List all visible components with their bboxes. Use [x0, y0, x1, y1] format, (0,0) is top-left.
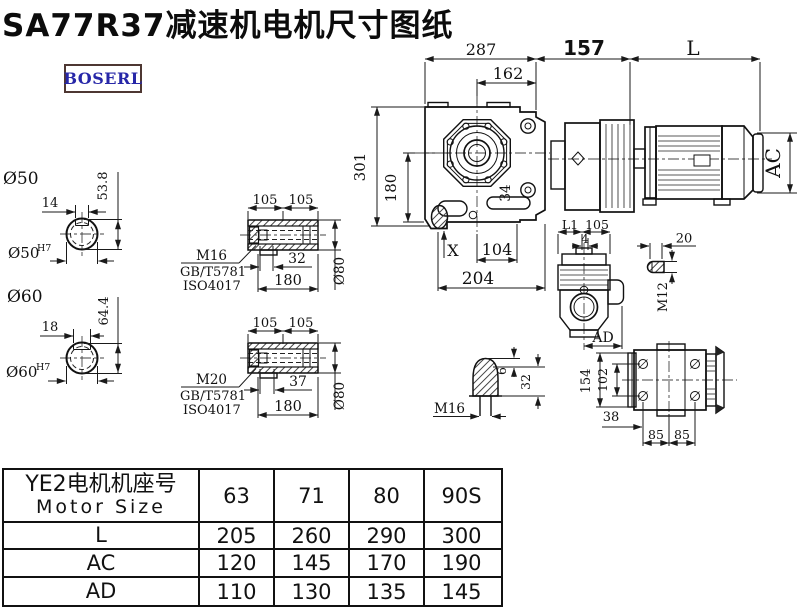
dim-162: 162: [493, 64, 524, 83]
table-row-AC: AC 120 145 170 190: [4, 548, 501, 576]
table-cell: 290: [348, 523, 423, 548]
label-bore60-tol: H7: [36, 362, 50, 373]
gearbox-side-view: L1 105 4 AD: [558, 217, 624, 350]
table-row-L: L 205 260 290 300: [4, 521, 501, 548]
label-std-iso: ISO4017: [183, 279, 241, 294]
dim-105c: 105: [253, 316, 278, 331]
dim-dia80b: Ø80: [332, 382, 348, 410]
table-cell: 130: [273, 578, 348, 605]
dim-L1: L1: [562, 217, 578, 232]
drawing-sheet: SA77R37减速机电机尺寸图纸 BOSERL 287 162 157 L: [0, 0, 800, 613]
label-dia50: Ø50: [3, 169, 39, 189]
dim-104: 104: [482, 240, 513, 259]
rear-view: 154 102 38 85 85: [579, 341, 737, 446]
dim-key18: 18: [42, 320, 59, 335]
label-bore50-tol: H7: [37, 243, 51, 254]
dim-AC: AC: [761, 148, 785, 179]
dim-32b: 32: [518, 374, 533, 390]
dim-105b: 105: [289, 193, 314, 208]
dim-20: 20: [676, 232, 693, 247]
dim-32: 32: [288, 251, 306, 267]
hollow-shaft-sleeve-bottom: 105 105 M20 GB/T5781 ISO4017 37 180 Ø80: [180, 316, 348, 418]
table-header-cn: YE2电机机座号: [25, 472, 176, 497]
size-col-71: 71: [273, 470, 348, 521]
row-label: AD: [4, 578, 198, 605]
table-row-AD: AD 110 130 135 145: [4, 576, 501, 605]
hollow-shaft-sleeve-top: 105 105 M16 GB/T5781 ISO4017 32 180 Ø80: [180, 193, 348, 294]
dim-dia80a: Ø80: [332, 257, 348, 285]
dim-38: 38: [603, 410, 620, 425]
label-std-gb2: GB/T5781: [180, 389, 246, 404]
table-cell: 145: [273, 550, 348, 576]
table-cell: 170: [348, 550, 423, 576]
row-label: L: [4, 523, 198, 548]
motor-assembly-view: [548, 120, 772, 212]
dim-102: 102: [595, 368, 610, 392]
dim-4: 4: [581, 232, 589, 246]
label-bolt-m16: M16: [196, 248, 227, 264]
table-header-en: Motor Size: [36, 497, 166, 519]
dim-180: 180: [382, 174, 400, 203]
label-std-iso2: ISO4017: [183, 403, 241, 418]
label-dia60: Ø60: [7, 287, 43, 307]
table-cell: 145: [423, 578, 498, 605]
dim-34: 34: [498, 184, 514, 201]
dim-37: 37: [289, 374, 307, 390]
label-std-gb: GB/T5781: [180, 265, 246, 280]
dim-157: 157: [563, 36, 605, 60]
row-label: AC: [4, 550, 198, 576]
dim-X: X: [447, 241, 459, 260]
table-cell: 135: [348, 578, 423, 605]
table-cell: 190: [423, 550, 498, 576]
dim-64.4: 64.4: [97, 297, 112, 326]
breather-detail: M16 6 32: [433, 347, 545, 417]
shaft-end-60-view: Ø60 18 64.4 Ø60 H7: [6, 287, 122, 384]
label-bore50: Ø50: [8, 244, 39, 262]
dim-6: 6: [494, 367, 509, 375]
table-cell: 110: [198, 578, 273, 605]
label-m12: M12: [656, 282, 671, 312]
table-cell: 260: [273, 523, 348, 548]
dim-105a: 105: [253, 193, 278, 208]
top-dimensions: 287 162 157 L: [425, 36, 760, 131]
size-col-80: 80: [348, 470, 423, 521]
bottom-dimensions: X 104 204: [438, 224, 545, 291]
table-cell: 120: [198, 550, 273, 576]
dim-105e: 105: [585, 217, 609, 232]
dim-L: L: [686, 36, 699, 60]
dim-53.8: 53.8: [96, 172, 111, 201]
table-header-cell: YE2电机机座号 Motor Size: [4, 470, 198, 521]
plug-detail: 20 M12: [637, 232, 696, 312]
dim-key14: 14: [42, 196, 59, 211]
dim-204: 204: [462, 269, 494, 289]
motor-size-table: YE2电机机座号 Motor Size 63 71 80 90S L 205 2…: [2, 468, 503, 607]
dim-85b: 85: [674, 427, 690, 442]
dim-154: 154: [579, 369, 594, 394]
size-col-63: 63: [198, 470, 273, 521]
dim-301: 301: [351, 153, 369, 182]
dim-105d: 105: [289, 316, 314, 331]
dim-180b: 180: [274, 399, 302, 415]
label-bore60: Ø60: [6, 363, 37, 381]
dim-85a: 85: [648, 427, 664, 442]
label-bolt-m20: M20: [196, 372, 227, 388]
size-col-90s: 90S: [423, 470, 498, 521]
dim-AD: AD: [591, 330, 613, 346]
label-m16-breather: M16: [434, 401, 465, 417]
table-cell: 205: [198, 523, 273, 548]
dim-180a: 180: [274, 273, 302, 289]
shaft-end-50-view: Ø50 14 53.8 Ø50 H7: [3, 169, 122, 264]
table-cell: 300: [423, 523, 498, 548]
gearbox-front-view: 34: [415, 96, 550, 232]
dim-287: 287: [466, 40, 497, 59]
